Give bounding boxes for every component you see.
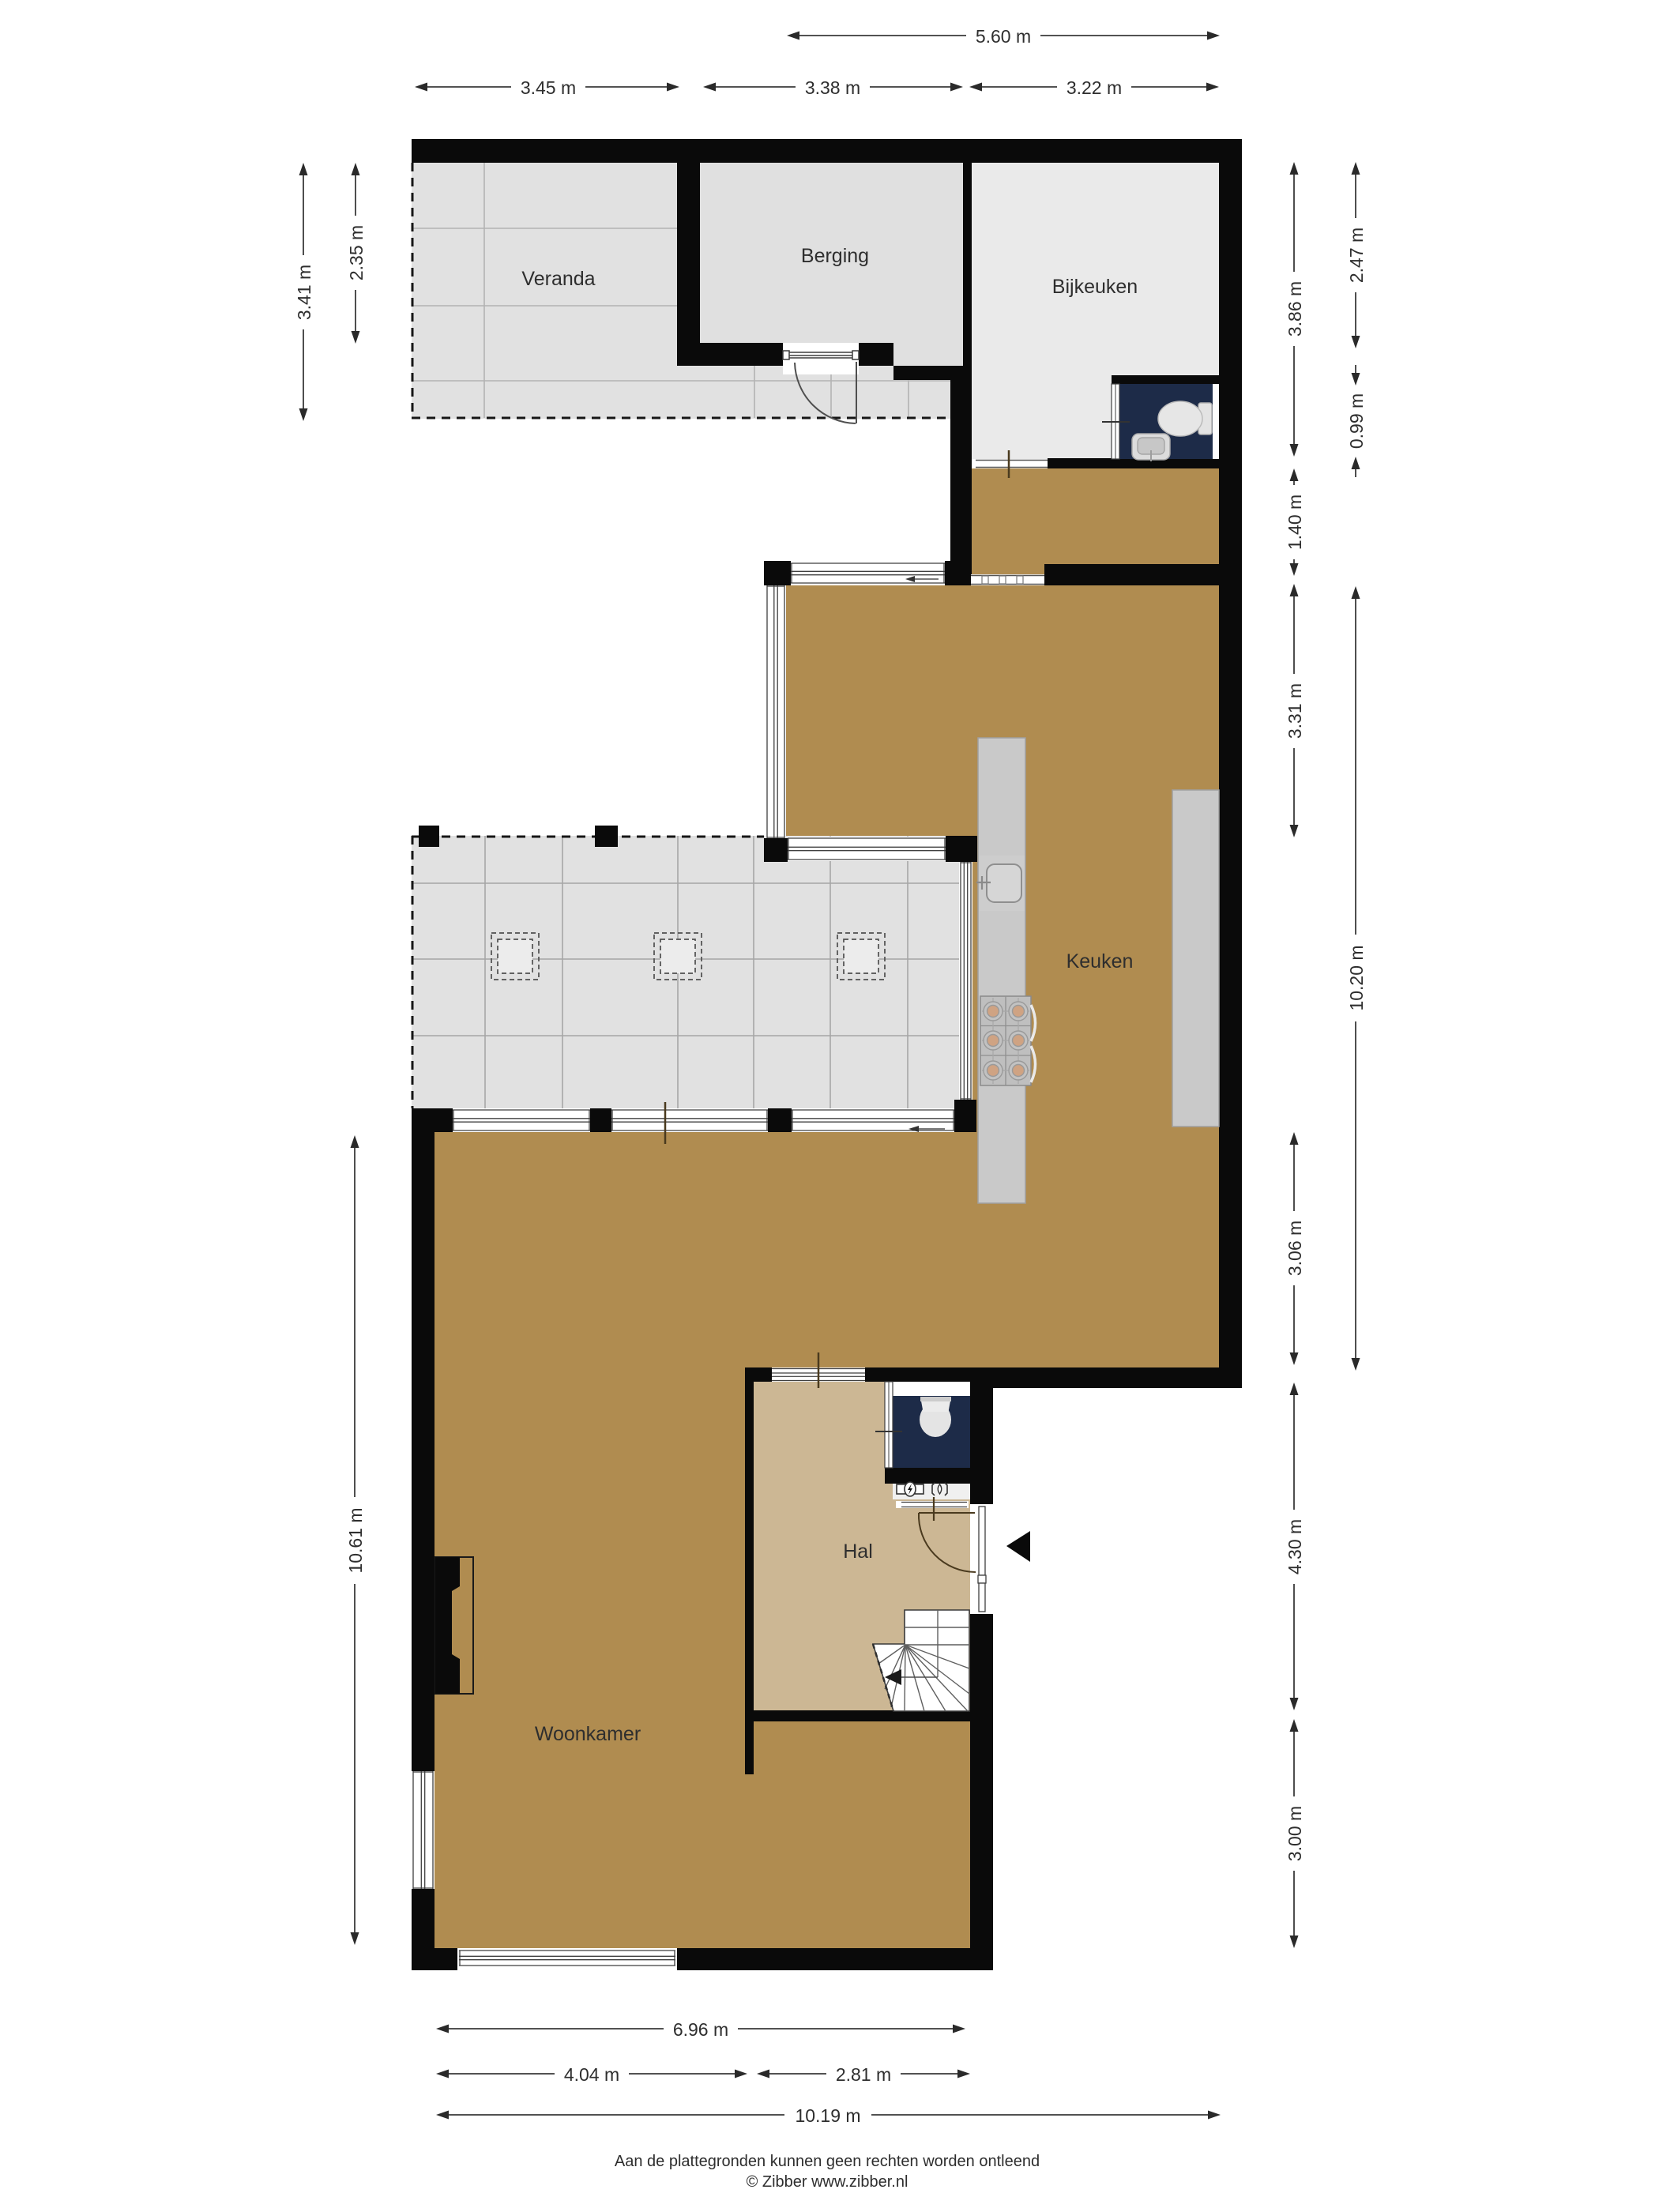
svg-text:3.41 m: 3.41 m — [294, 265, 314, 320]
svg-text:5.60 m: 5.60 m — [976, 26, 1031, 47]
svg-text:10.61 m: 10.61 m — [345, 1507, 366, 1573]
svg-text:3.06 m: 3.06 m — [1285, 1221, 1305, 1276]
svg-text:© Zibber www.zibber.nl: © Zibber www.zibber.nl — [747, 2173, 908, 2191]
svg-text:3.45 m: 3.45 m — [521, 77, 576, 98]
svg-text:Berging: Berging — [801, 245, 869, 267]
svg-text:0.99 m: 0.99 m — [1346, 393, 1367, 449]
svg-text:3.38 m: 3.38 m — [805, 77, 860, 98]
svg-text:Keuken: Keuken — [1066, 950, 1134, 972]
svg-text:Veranda: Veranda — [521, 268, 595, 290]
svg-text:1.40 m: 1.40 m — [1285, 495, 1305, 550]
svg-text:3.31 m: 3.31 m — [1285, 683, 1305, 739]
svg-text:Woonkamer: Woonkamer — [535, 1723, 641, 1745]
svg-text:3.86 m: 3.86 m — [1285, 281, 1305, 337]
svg-text:Aan de plattegronden kunnen ge: Aan de plattegronden kunnen geen rechten… — [615, 2153, 1040, 2170]
svg-text:2.81 m: 2.81 m — [836, 2064, 891, 2085]
svg-text:10.20 m: 10.20 m — [1346, 945, 1367, 1010]
svg-text:Hal: Hal — [843, 1540, 873, 1563]
svg-text:4.30 m: 4.30 m — [1285, 1519, 1305, 1574]
svg-text:6.96 m: 6.96 m — [673, 2019, 728, 2040]
svg-text:10.19 m: 10.19 m — [795, 2105, 860, 2126]
svg-text:4.04 m: 4.04 m — [564, 2064, 619, 2085]
svg-text:3.22 m: 3.22 m — [1066, 77, 1122, 98]
svg-text:2.35 m: 2.35 m — [346, 225, 367, 280]
svg-text:Bijkeuken: Bijkeuken — [1052, 276, 1138, 298]
svg-text:2.47 m: 2.47 m — [1346, 228, 1367, 283]
svg-text:3.00 m: 3.00 m — [1285, 1806, 1305, 1861]
